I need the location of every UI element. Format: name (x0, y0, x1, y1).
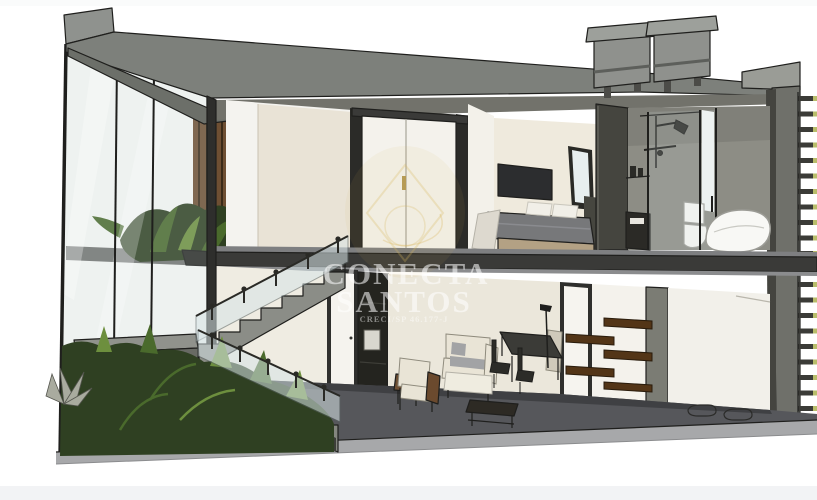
footer-strip (0, 486, 817, 500)
bedroom-bathroom-wall (596, 104, 628, 250)
tv (498, 164, 552, 200)
bathroom (626, 106, 770, 252)
section-render: CONECTA SANTOS CRECI/SP 46.177-J (0, 0, 817, 500)
stair-void-wall (226, 100, 352, 250)
bathroom-cabinet (626, 212, 650, 250)
watermark-license: CRECI/SP 46.177-J (360, 314, 449, 324)
section-render-canvas: CONECTA SANTOS CRECI/SP 46.177-J (0, 0, 817, 500)
upper-floor (226, 100, 770, 256)
shower-glass-door (648, 108, 716, 250)
